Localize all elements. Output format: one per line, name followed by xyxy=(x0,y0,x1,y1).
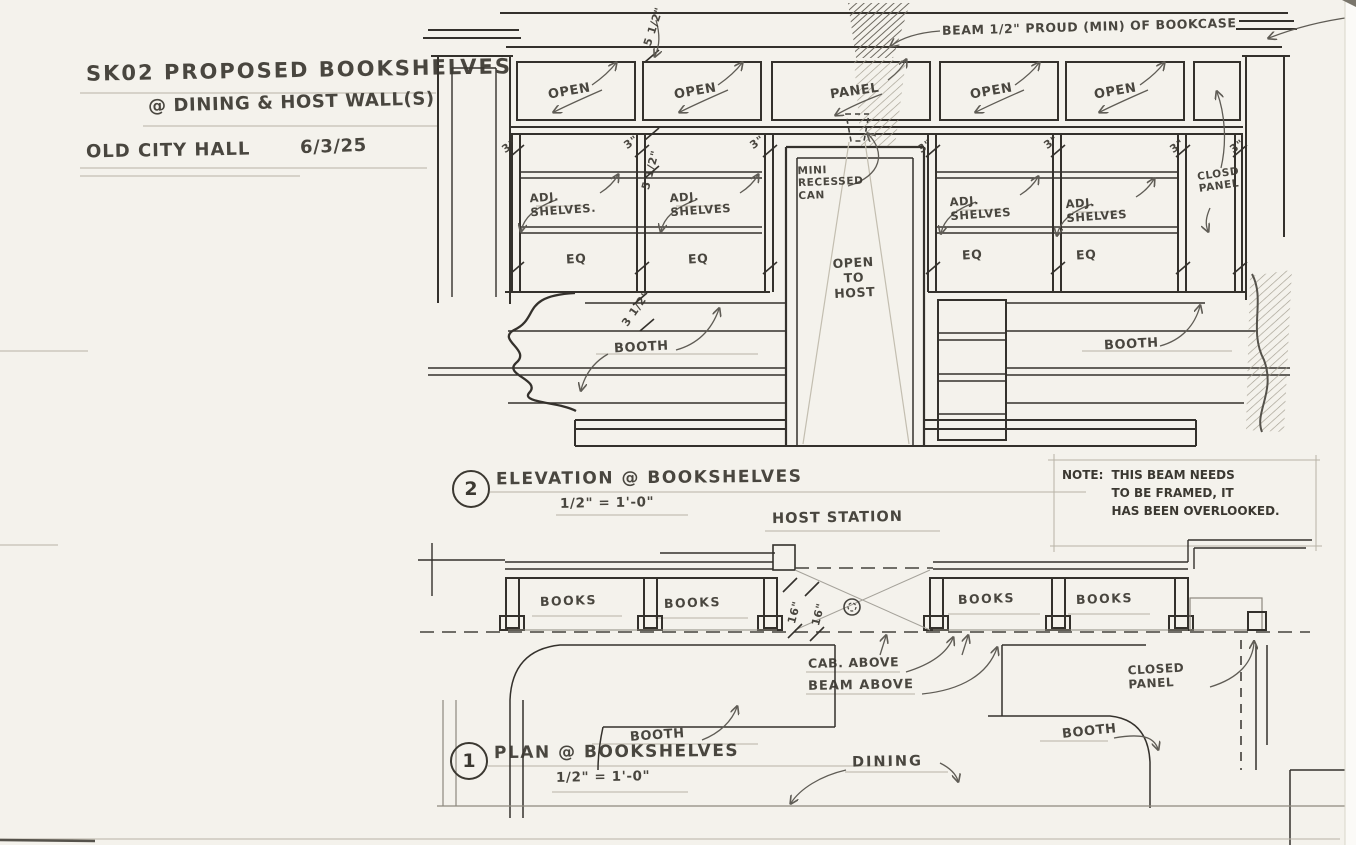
adj-shelves-2: ADJ. SHELVES xyxy=(669,188,731,219)
plan-scale: 1/2" = 1'-0" xyxy=(556,769,650,787)
elevation-scale: 1/2" = 1'-0" xyxy=(560,495,654,513)
books-label-3: BOOKS xyxy=(958,591,1015,608)
dining-label: DINING xyxy=(852,753,923,771)
sketch-linework xyxy=(0,0,1356,845)
project-name: OLD CITY HALL xyxy=(86,139,251,163)
plan-title: PLAN @ BOOKSHELVES xyxy=(494,741,739,763)
host-station-label: HOST STATION xyxy=(772,509,903,528)
open-to-host-label: OPEN TO HOST xyxy=(821,254,887,302)
sketch-sheet: SK02 PROPOSED BOOKSHELVES @ DINING & HOS… xyxy=(0,0,1356,845)
eq-label-1: EQ xyxy=(566,251,587,267)
beam-note-box: NOTE: THIS BEAM NEEDS TO BE FRAMED, IT H… xyxy=(1062,466,1310,520)
eq-label-2: EQ xyxy=(688,251,709,267)
booth-elevation-right: BOOTH xyxy=(1104,336,1159,354)
adj-shelves-1: ADJ. SHELVES. xyxy=(529,188,596,220)
sketch-date: 6/3/25 xyxy=(300,135,368,159)
adj-shelves-4: ADJ. SHELVES xyxy=(1065,194,1127,225)
adj-shelves-3: ADJ. SHELVES xyxy=(949,192,1011,223)
eq-label-3: EQ xyxy=(962,247,983,263)
books-label-1: BOOKS xyxy=(540,593,597,610)
elevation-number-bubble: 2 xyxy=(452,470,490,508)
closed-panel-plan-label: CLOSED PANEL xyxy=(1127,661,1185,692)
beam-above-label: BEAM ABOVE xyxy=(808,677,914,694)
eq-label-4: EQ xyxy=(1076,247,1097,263)
cab-above-label: CAB. ABOVE xyxy=(808,655,899,671)
note-label: NOTE: xyxy=(1062,466,1103,520)
books-label-2: BOOKS xyxy=(664,595,721,612)
plan-number-bubble: 1 xyxy=(450,742,488,780)
mini-can-note: MINI RECESSED CAN xyxy=(797,163,864,202)
booth-elevation-left: BOOTH xyxy=(614,339,669,357)
books-label-4: BOOKS xyxy=(1076,591,1133,608)
note-body: THIS BEAM NEEDS TO BE FRAMED, IT HAS BEE… xyxy=(1111,466,1279,520)
elevation-title: ELEVATION @ BOOKSHELVES xyxy=(496,467,803,490)
